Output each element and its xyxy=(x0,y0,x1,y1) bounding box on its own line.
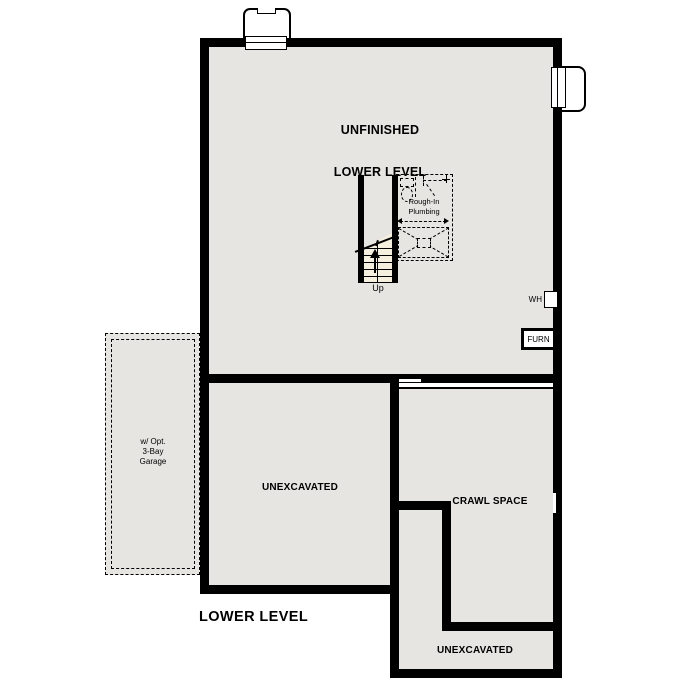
up-arrow-stem xyxy=(374,257,376,273)
top-window xyxy=(245,36,287,50)
main-room-fill xyxy=(204,42,558,380)
left-room-label: UNEXCAVATED xyxy=(225,482,375,493)
stair-center-line xyxy=(377,241,378,283)
right-window xyxy=(551,67,566,108)
garage-label: w/ Opt. 3-Bay Garage xyxy=(118,437,188,467)
wall-notch-vertical xyxy=(442,501,451,631)
wall-right xyxy=(553,38,562,678)
crawl-and-unexcavated-fill xyxy=(394,386,558,675)
stairs-up-label: Up xyxy=(362,283,394,293)
crawl-top-line xyxy=(399,387,553,389)
right-window-mullion xyxy=(557,68,558,107)
furnace-box-inner: FURN xyxy=(523,330,554,348)
plumbing-dim-line xyxy=(400,221,446,222)
wall-final-bottom xyxy=(390,669,562,678)
furnace-label: FURN xyxy=(527,335,549,344)
main-room-label: UNFINISHED LOWER LEVEL xyxy=(300,95,460,207)
garage-label-line2: 3-Bay xyxy=(118,447,188,457)
plumbing-label-line2: Plumbing xyxy=(397,207,451,217)
garage-label-line3: Garage xyxy=(118,457,188,467)
top-window-mullion xyxy=(246,42,286,43)
water-heater-label: WH xyxy=(520,295,542,304)
wall-mid-bottom xyxy=(442,622,562,631)
page-title: LOWER LEVEL xyxy=(199,609,308,625)
furnace-box: FURN xyxy=(521,328,556,350)
stair-tread-3 xyxy=(364,262,392,263)
wall-left xyxy=(200,38,209,594)
wall-main-bottom-opening xyxy=(399,379,421,382)
stair-tread-4 xyxy=(364,269,392,270)
crawl-access-notch xyxy=(553,493,556,513)
main-room-label-line2: LOWER LEVEL xyxy=(300,165,460,179)
bottom-room-label: UNEXCAVATED xyxy=(400,645,550,656)
stair-tread-5 xyxy=(364,276,392,277)
garage-label-line1: w/ Opt. xyxy=(118,437,188,447)
wall-main-bottom xyxy=(200,374,562,383)
plumbing-dim-arrow-left xyxy=(397,218,402,224)
main-room-label-line1: UNFINISHED xyxy=(300,123,460,137)
crawl-space-label: CRAWL SPACE xyxy=(430,496,550,507)
water-heater-box xyxy=(544,291,558,308)
wall-left-room-bottom xyxy=(200,585,399,594)
plumbing-dim-arrow-right xyxy=(444,218,449,224)
wall-divider-vertical xyxy=(390,374,399,678)
top-window-well-notch xyxy=(257,8,276,14)
tub-drain xyxy=(417,238,431,248)
floor-plan-canvas: w/ Opt. 3-Bay Garage Up xyxy=(0,0,687,687)
